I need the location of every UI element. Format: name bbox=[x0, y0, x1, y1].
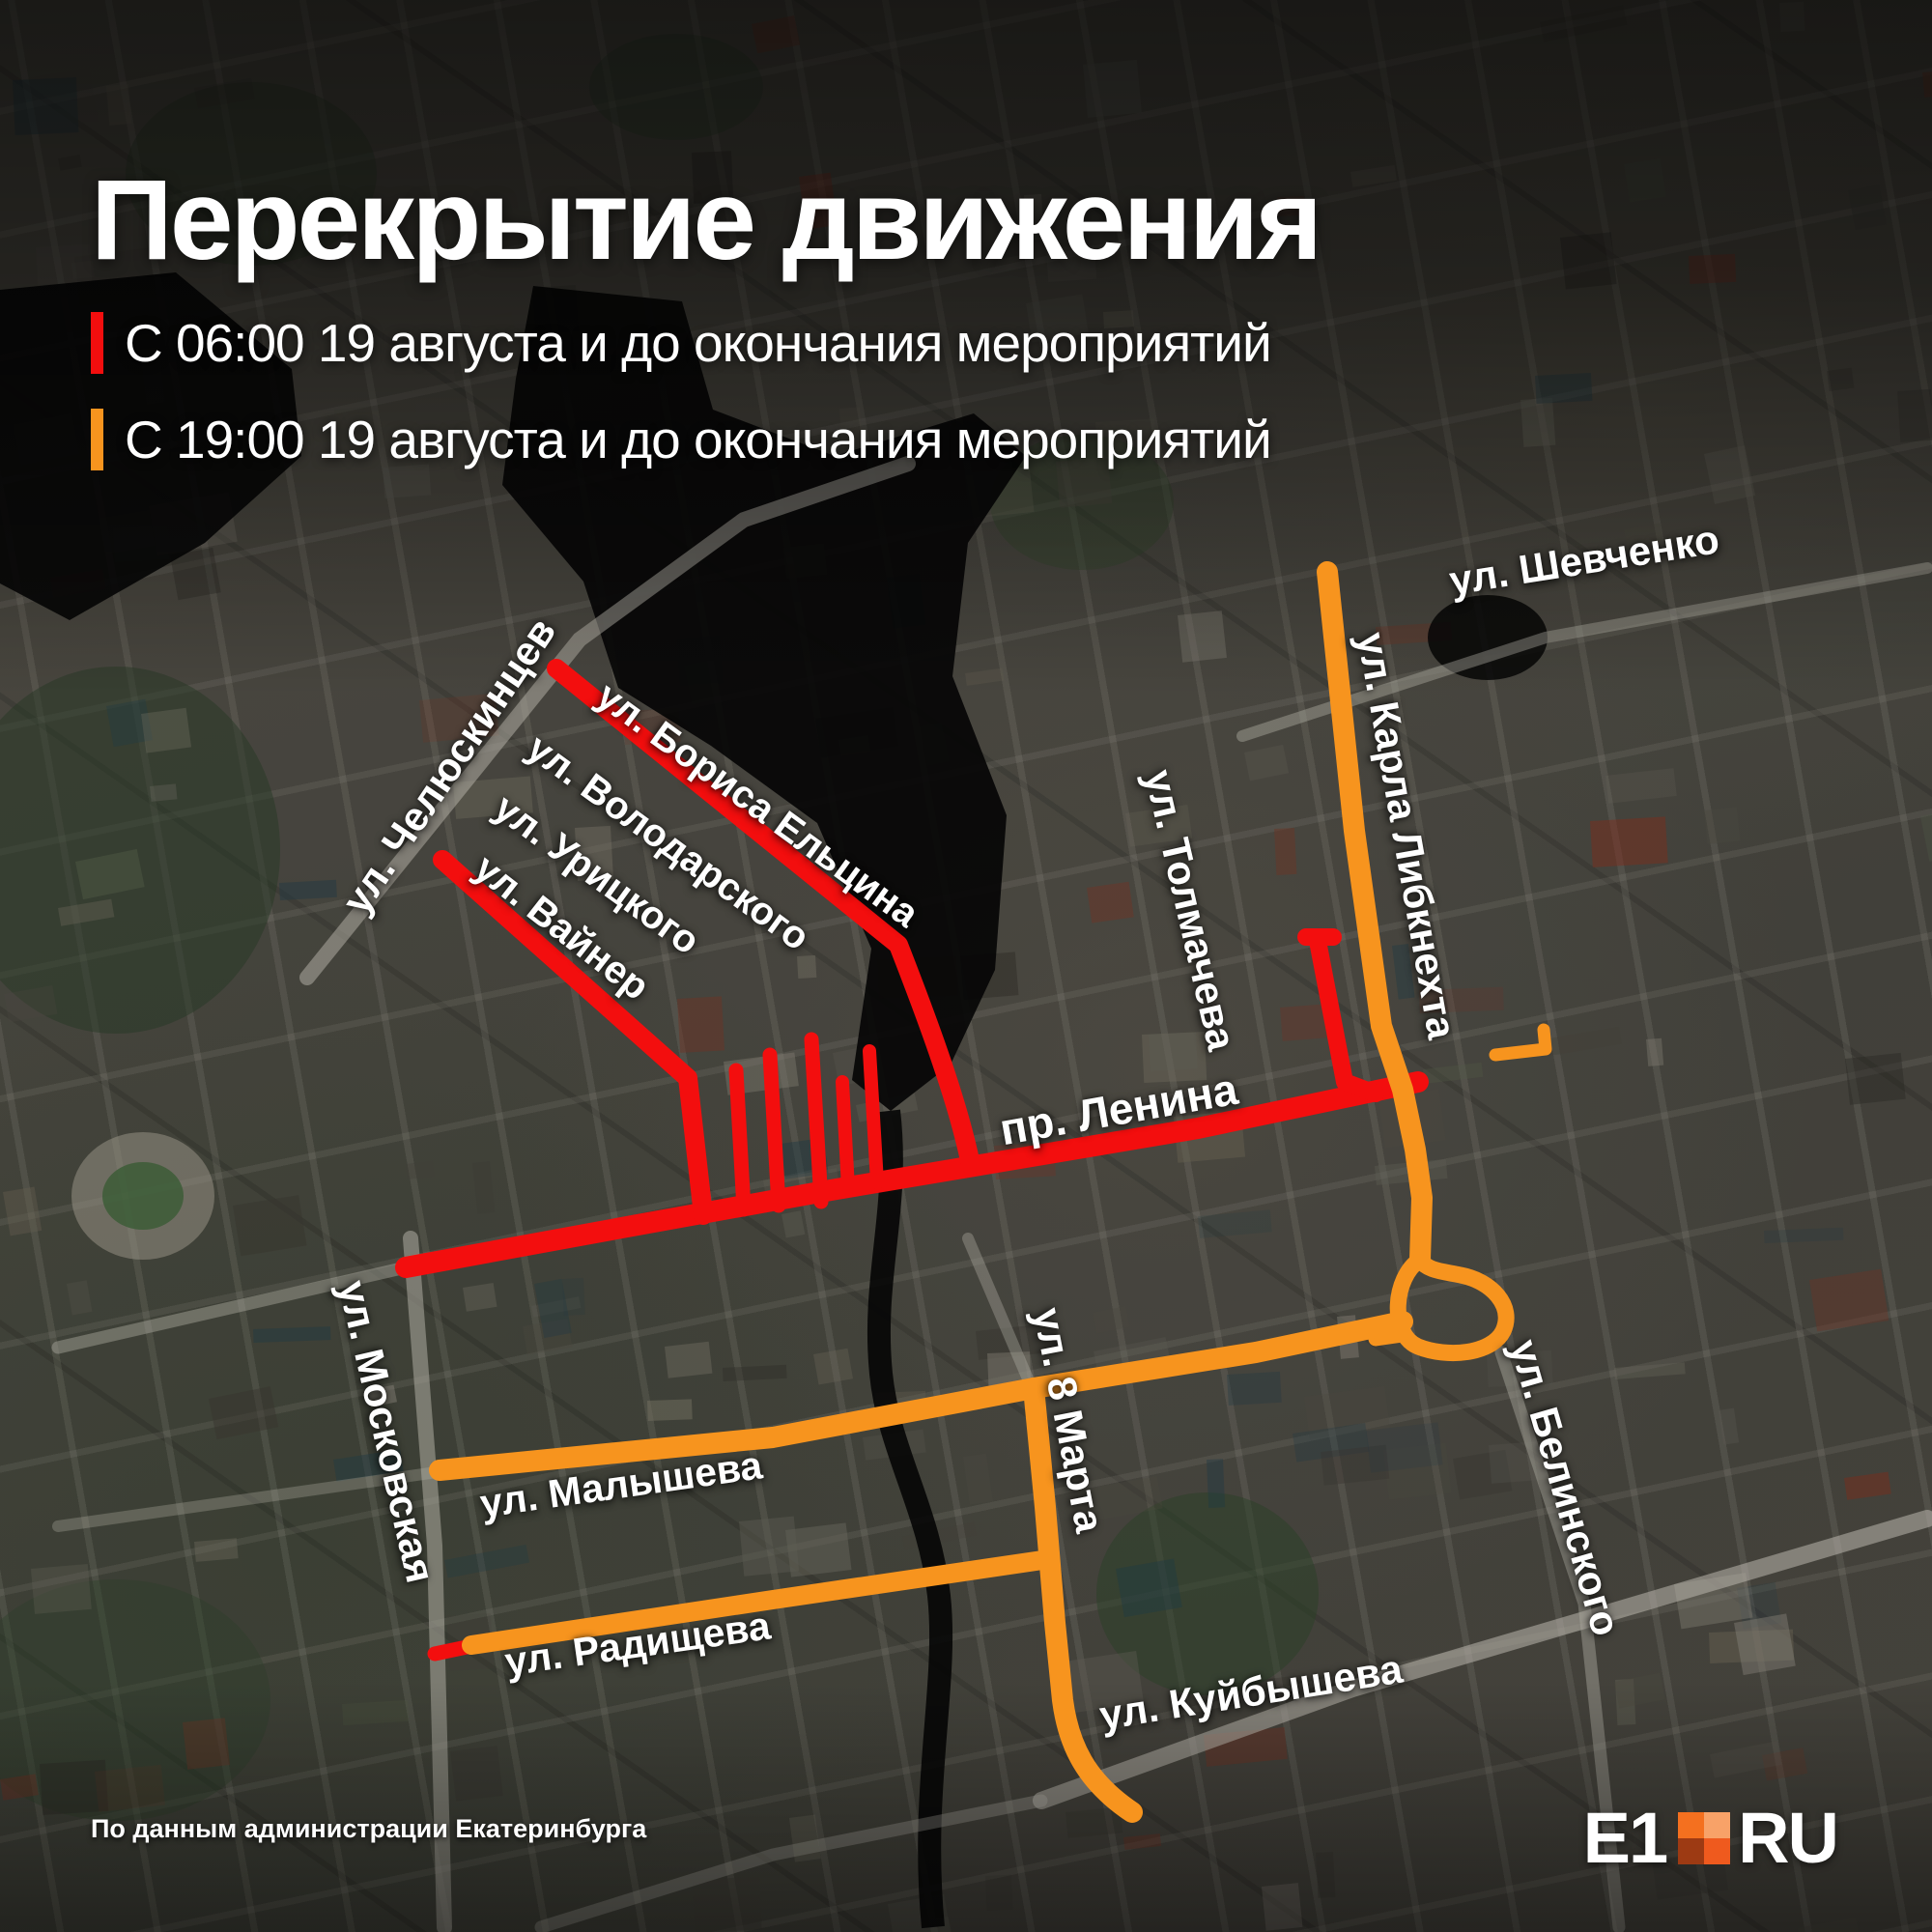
logo-orange-square bbox=[1678, 1812, 1730, 1864]
e1ru-logo: E1 RU bbox=[1583, 1803, 1837, 1874]
legend-label-red: С 06:00 19 августа и до окончания меропр… bbox=[125, 312, 1271, 374]
closure-volodarskogo-segment bbox=[736, 1070, 744, 1209]
closure-vayner-segment bbox=[811, 1039, 821, 1202]
closure-belinskogo-loop bbox=[1398, 1260, 1506, 1353]
closure-uritskogo-segment bbox=[770, 1055, 779, 1206]
legend-label-orange: С 19:00 19 августа и до окончания меропр… bbox=[125, 409, 1271, 470]
closure-connector-a-segment bbox=[842, 1082, 848, 1188]
legend-item-red: С 06:00 19 августа и до окончания меропр… bbox=[91, 311, 1271, 375]
data-source-note: По данным администрации Екатеринбурга bbox=[91, 1814, 646, 1844]
logo-ru-text: RU bbox=[1738, 1803, 1837, 1874]
closure-lines-layer bbox=[0, 0, 1932, 1932]
legend: С 06:00 19 августа и до окончания меропр… bbox=[91, 311, 1271, 504]
closure-malysheva-segment bbox=[440, 1321, 1403, 1470]
legend-item-orange: С 19:00 19 августа и до окончания меропр… bbox=[91, 408, 1271, 471]
logo-square-quadrant-3 bbox=[1704, 1838, 1730, 1864]
closure-side-street-stub bbox=[1495, 1030, 1546, 1055]
page-title: Перекрытие движения bbox=[91, 155, 1320, 286]
logo-square-quadrant-1 bbox=[1704, 1812, 1730, 1838]
closure-prospekt-lenina bbox=[406, 1082, 1418, 1267]
logo-square-quadrant-2 bbox=[1678, 1838, 1704, 1864]
legend-swatch-orange bbox=[91, 409, 103, 470]
legend-swatch-red bbox=[91, 312, 103, 374]
closure-connector-b-segment bbox=[869, 1051, 877, 1182]
logo-e1-text: E1 bbox=[1583, 1803, 1667, 1874]
infographic-root: ул. Шевченкоул. Карла Либкнехтаул. Толма… bbox=[0, 0, 1932, 1932]
logo-square-quadrant-0 bbox=[1678, 1812, 1704, 1838]
